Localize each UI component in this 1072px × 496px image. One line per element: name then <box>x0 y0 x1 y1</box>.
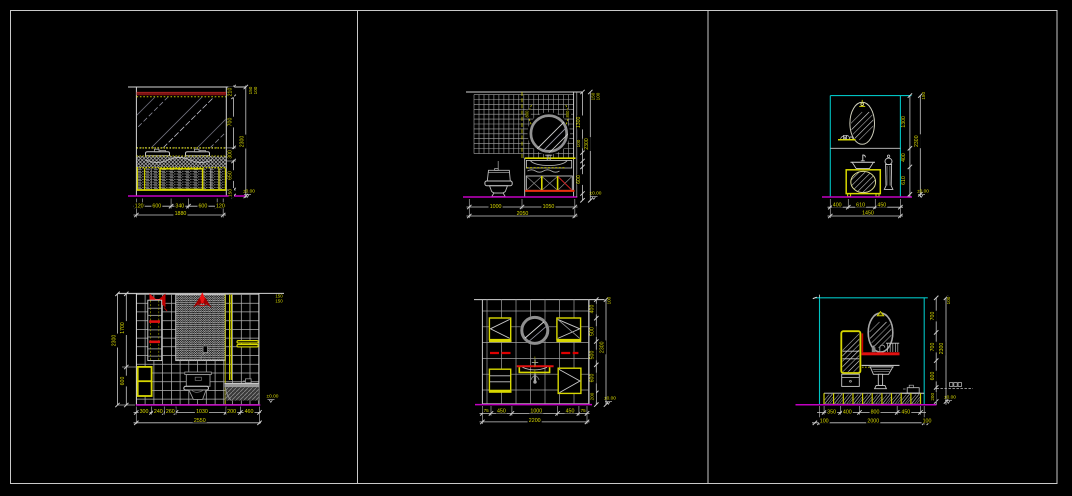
svg-text:1000: 1000 <box>530 409 542 415</box>
svg-text:2550: 2550 <box>194 418 206 424</box>
svg-text:±0.00: ±0.00 <box>604 396 616 402</box>
svg-text:610: 610 <box>856 203 865 209</box>
svg-text:±0.00: ±0.00 <box>243 189 255 195</box>
svg-text:600: 600 <box>152 204 161 210</box>
svg-text:100: 100 <box>595 92 600 100</box>
svg-text:100: 100 <box>820 419 829 425</box>
svg-text:600: 600 <box>930 372 936 381</box>
svg-text:1880: 1880 <box>175 211 187 217</box>
svg-text:700: 700 <box>930 343 936 352</box>
svg-text:700: 700 <box>228 118 234 127</box>
svg-text:75: 75 <box>581 408 587 413</box>
svg-text:260: 260 <box>166 409 175 415</box>
svg-text:210: 210 <box>228 88 234 97</box>
svg-text:450: 450 <box>497 409 506 415</box>
svg-text:300: 300 <box>228 150 234 159</box>
svg-text:200: 200 <box>590 392 595 400</box>
svg-text:2300: 2300 <box>584 138 590 150</box>
svg-text:400: 400 <box>843 410 852 416</box>
svg-text:610: 610 <box>901 176 907 185</box>
svg-text:350: 350 <box>827 410 836 416</box>
svg-text:2300: 2300 <box>240 136 246 148</box>
svg-text:450: 450 <box>566 409 575 415</box>
svg-text:100: 100 <box>607 296 612 304</box>
svg-text:2300: 2300 <box>111 335 117 347</box>
svg-text:600: 600 <box>590 374 596 383</box>
svg-text:600: 600 <box>576 175 582 184</box>
svg-text:100: 100 <box>576 139 581 147</box>
svg-text:±0.00: ±0.00 <box>590 191 602 197</box>
svg-text:120: 120 <box>135 204 144 210</box>
svg-text:2300: 2300 <box>914 135 920 147</box>
svg-text:1700: 1700 <box>120 322 126 334</box>
svg-text:1030: 1030 <box>196 409 208 415</box>
svg-text:400: 400 <box>901 153 907 162</box>
svg-text:120: 120 <box>216 204 225 210</box>
svg-text:460: 460 <box>245 409 254 415</box>
svg-text:500: 500 <box>590 327 596 336</box>
svg-text:1300: 1300 <box>576 117 582 129</box>
svg-text:240: 240 <box>154 409 163 415</box>
svg-text:2300: 2300 <box>939 343 945 355</box>
svg-text:1000: 1000 <box>490 204 502 210</box>
svg-text:150: 150 <box>275 299 283 304</box>
svg-text:1450: 1450 <box>862 211 874 217</box>
svg-text:2300: 2300 <box>599 341 605 353</box>
svg-text:200: 200 <box>930 393 935 401</box>
svg-text:800: 800 <box>525 110 530 118</box>
svg-text:75: 75 <box>484 408 490 413</box>
svg-text:400: 400 <box>833 203 842 209</box>
svg-text:400: 400 <box>590 305 596 314</box>
svg-text:1300: 1300 <box>901 116 907 128</box>
svg-text:100: 100 <box>946 296 951 304</box>
svg-text:±0.00: ±0.00 <box>944 395 956 401</box>
svg-text:±0.00: ±0.00 <box>917 189 929 195</box>
svg-text:300: 300 <box>140 409 149 415</box>
svg-text:500: 500 <box>590 351 596 360</box>
svg-text:600: 600 <box>120 377 126 386</box>
svg-text:800: 800 <box>871 410 880 416</box>
svg-text:2200: 2200 <box>529 418 541 424</box>
svg-text:2050: 2050 <box>517 211 529 217</box>
svg-text:1050: 1050 <box>543 204 555 210</box>
svg-text:450: 450 <box>901 410 910 416</box>
svg-text:2000: 2000 <box>867 419 879 425</box>
svg-text:800: 800 <box>565 110 570 118</box>
svg-text:200: 200 <box>227 409 236 415</box>
svg-text:±0.00: ±0.00 <box>267 394 279 400</box>
svg-text:150: 150 <box>228 189 234 197</box>
svg-text:450: 450 <box>877 203 886 209</box>
svg-text:100: 100 <box>923 419 932 425</box>
svg-text:340: 340 <box>175 204 184 210</box>
svg-text:150: 150 <box>921 92 926 100</box>
svg-text:650: 650 <box>228 171 234 180</box>
svg-text:100: 100 <box>253 86 258 94</box>
svg-text:700: 700 <box>930 312 936 321</box>
svg-text:600: 600 <box>198 204 207 210</box>
